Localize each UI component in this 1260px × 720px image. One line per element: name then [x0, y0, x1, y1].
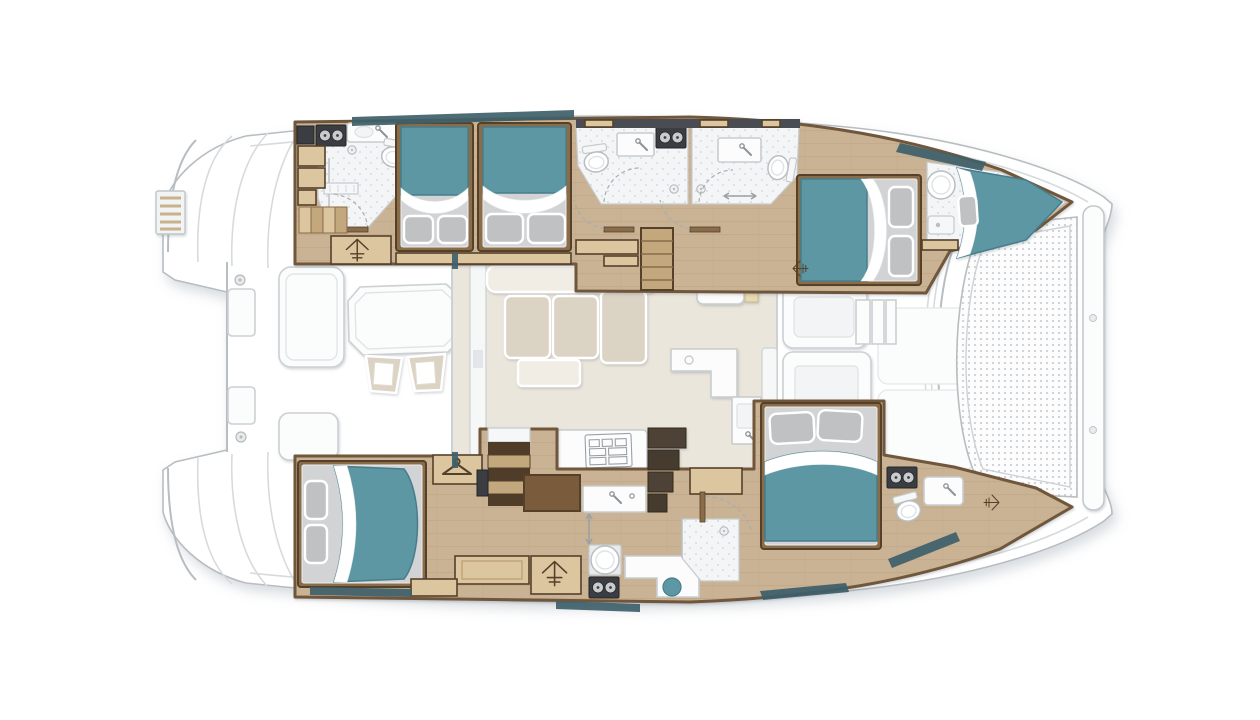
round-basin [927, 171, 955, 199]
cockpit-dining-table [348, 284, 462, 355]
sofa-cushion [553, 296, 598, 358]
cabin-door [690, 227, 720, 232]
washer [316, 125, 346, 146]
shelf [604, 256, 638, 266]
pillow [486, 214, 523, 243]
pillow [889, 187, 913, 227]
sliding-door-forward [762, 348, 777, 406]
washer [589, 577, 619, 598]
toilet-compact [928, 216, 954, 234]
cockpit-bench [279, 413, 338, 460]
pillow [889, 236, 913, 276]
stairs-to-port-hull [641, 228, 673, 290]
deck-hatch-locker [531, 556, 581, 594]
shelf [922, 240, 958, 250]
port-double-bed-1 [396, 123, 473, 251]
locker [477, 470, 488, 496]
floor-plan-drawing: Catamaran interior deck plan, top-down v… [0, 0, 1260, 720]
pillow [305, 525, 327, 563]
pillow [958, 195, 978, 226]
washer [656, 127, 686, 148]
pillow [769, 412, 815, 444]
cleat [235, 275, 245, 285]
shelf [576, 240, 638, 254]
sink-basin [663, 578, 681, 596]
port-double-bed-2 [478, 123, 571, 251]
forward-crossbeam [1083, 206, 1104, 510]
step [872, 300, 884, 344]
sofa-chaise-cushion [601, 291, 646, 363]
shelf [298, 190, 316, 205]
transom-box [228, 289, 255, 336]
locker [297, 126, 314, 144]
port-aft-steps [299, 207, 347, 233]
shelf [298, 168, 325, 188]
bed-shelf [396, 253, 571, 264]
forward-bench [783, 286, 867, 348]
cleat [236, 432, 246, 442]
transom-box [228, 387, 255, 424]
shelf [411, 579, 457, 596]
ottoman-table [518, 360, 580, 386]
folding-chair [366, 356, 402, 393]
step [856, 300, 870, 344]
pillow [528, 214, 565, 243]
sofa-cushion [505, 296, 550, 358]
cabinet [524, 475, 580, 511]
folding-chair [408, 354, 445, 391]
pillow [817, 410, 863, 442]
catamaran-floor-plan-page: Catamaran interior deck plan, top-down v… [0, 0, 1260, 720]
cabin-door [604, 227, 634, 232]
round-basin [591, 546, 619, 574]
owner-vanity-desk [455, 556, 529, 584]
boarding-ladder [156, 191, 185, 234]
vanity-unit [887, 467, 917, 488]
pillow [438, 216, 467, 243]
step [886, 300, 896, 344]
bench-seat [690, 468, 742, 494]
trampoline-mesh [957, 217, 1077, 497]
cabin-door [700, 492, 705, 522]
shelf [298, 146, 325, 166]
starboard-forward-bed [761, 403, 881, 549]
pillow [404, 216, 433, 243]
deck-hatch-locker [331, 236, 391, 264]
pillow [305, 481, 327, 519]
port-forward-bed [797, 175, 921, 285]
owner-bed [298, 461, 426, 587]
cockpit-bench [279, 267, 344, 367]
window-strip [452, 253, 458, 269]
door-handle [473, 350, 483, 368]
window-strip [452, 452, 458, 468]
cooktop [585, 433, 632, 468]
